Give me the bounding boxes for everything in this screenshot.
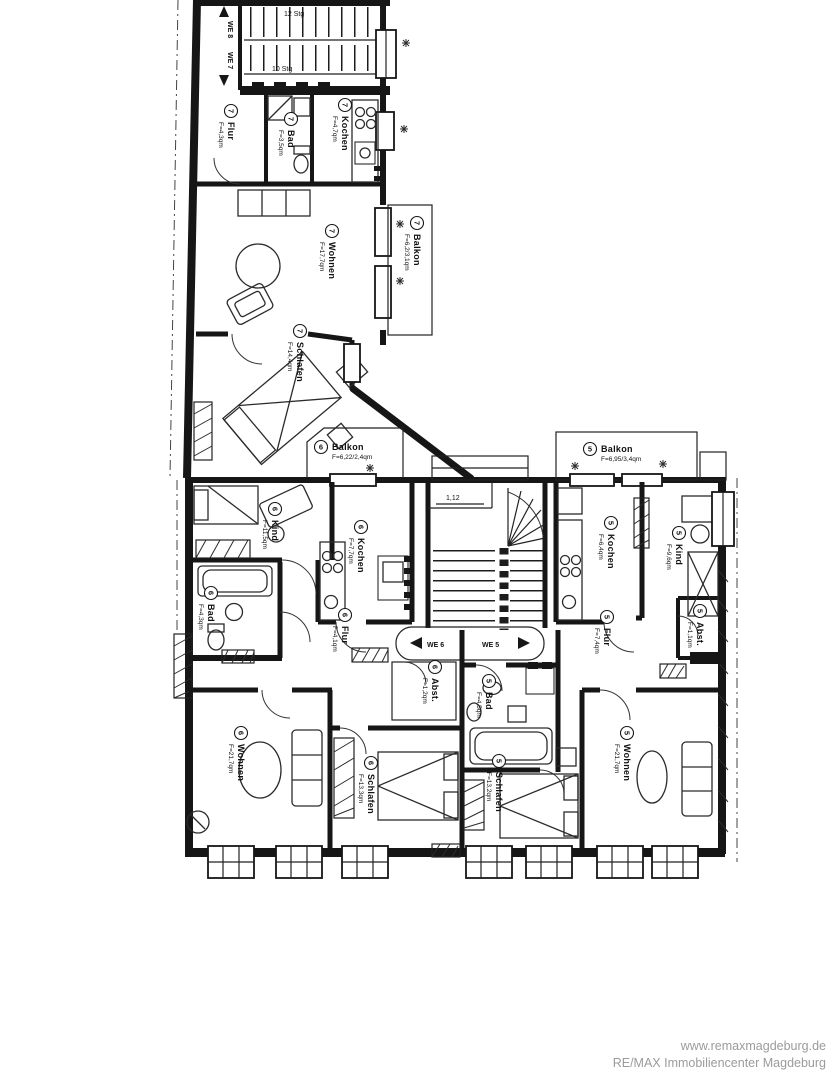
- svg-text:F=7,7qm: F=7,7qm: [347, 538, 354, 564]
- watermark: www.remaxmagdeburg.de RE/MAX Immobilienc…: [613, 1038, 826, 1072]
- svg-text:Flur: Flur: [340, 626, 350, 644]
- room-label-we6-flur: 6 Flur F=4,1qm: [331, 609, 352, 652]
- threshold: [352, 648, 388, 662]
- svg-text:5: 5: [494, 759, 503, 763]
- room-label-we6-abst: 6 Abst. F=1,2qm: [421, 661, 442, 704]
- svg-text:Bad: Bad: [206, 604, 216, 622]
- svg-text:F=6,4qm: F=6,4qm: [597, 534, 604, 560]
- sofa: [292, 730, 322, 806]
- svg-text:F=7,4qm: F=7,4qm: [593, 628, 600, 654]
- stairwell-top: 12 Stg 10 Stg: [240, 3, 390, 95]
- svg-text:6: 6: [340, 613, 349, 617]
- vent-symbol: [396, 220, 404, 228]
- room-label-we7-flur: 7 Flur F=4,3qm: [217, 105, 238, 148]
- svg-text:6: 6: [319, 443, 323, 452]
- svg-text:5: 5: [695, 609, 704, 613]
- room-label-we7-kochen: 7 Kochen F=4,7qm: [331, 99, 352, 151]
- vent-symbol: [366, 464, 374, 472]
- room-label-we5-schlafen: 5 Schlafen F=13,2qm: [485, 755, 506, 812]
- svg-text:6: 6: [236, 731, 245, 735]
- chair: [691, 525, 709, 543]
- washer: [526, 668, 554, 694]
- table: [637, 751, 667, 803]
- window: [466, 846, 512, 878]
- window: [208, 846, 254, 878]
- unit-marker-we7: WE 7: [219, 52, 233, 86]
- we5-schlafen-fixtures: [464, 748, 578, 838]
- bed: [500, 774, 578, 838]
- room-label-we5-kochen: 5 Kochen F=6,4qm: [597, 517, 618, 569]
- vent-symbol: [396, 277, 404, 285]
- svg-text:Kind: Kind: [674, 544, 684, 565]
- room-label-we5-abst: 5 Abst. F=1,1qm: [686, 605, 707, 648]
- svg-text:7: 7: [340, 103, 349, 107]
- svg-text:7: 7: [286, 117, 295, 121]
- room-label-we6-wohnen: 6 Wohnen F=21,7qm: [227, 727, 248, 782]
- we5-wohnen-fixtures: [637, 742, 712, 816]
- svg-text:6: 6: [366, 761, 375, 765]
- we7-label: WE 7: [226, 52, 233, 69]
- svg-text:Bad: Bad: [484, 692, 494, 710]
- we5-label: WE 5: [482, 642, 499, 649]
- room-label-we5-balkon: 5 Balkon F=6,95/3,4qm: [584, 443, 642, 464]
- we6-schlafen-fixtures: [334, 738, 458, 820]
- room-label-we6-schlafen: 6 Schlafen F=13,3qm: [357, 757, 378, 814]
- sofa: [682, 742, 712, 816]
- svg-text:F=1,2qm: F=1,2qm: [421, 678, 428, 704]
- window: [276, 846, 322, 878]
- room-label-we5-bad: 5 Bad F=4,5qm: [475, 675, 496, 718]
- room-label-we7-balkon: 7 Balkon F=6,2/3,1qm: [403, 217, 424, 271]
- vent-symbol: [659, 460, 667, 468]
- svg-text:F=1,1qm: F=1,1qm: [686, 622, 693, 648]
- wardrobe: [194, 402, 212, 460]
- svg-text:Kochen: Kochen: [606, 534, 616, 569]
- bed: [378, 752, 458, 820]
- vent-symbol: [400, 125, 408, 133]
- floor-plan-page: 12 Stg 10 Stg WE 8 WE 7: [0, 0, 831, 1080]
- floor-plan-canvas: 12 Stg 10 Stg WE 8 WE 7: [0, 0, 831, 1080]
- room-label-we5-flur: 5 Flur F=7,4qm: [593, 611, 614, 654]
- bed: [194, 486, 258, 524]
- vent-symbol: [571, 462, 579, 470]
- watermark-company: RE/MAX Immobiliencenter Magdeburg: [613, 1055, 826, 1072]
- svg-text:F=14,4qm: F=14,4qm: [286, 342, 293, 371]
- sink: [226, 604, 243, 621]
- svg-text:5: 5: [588, 445, 592, 454]
- bathtub: [470, 728, 552, 764]
- svg-text:5: 5: [674, 531, 683, 535]
- svg-text:F=13,3qm: F=13,3qm: [357, 774, 364, 803]
- room-label-we6-bad: 6 Bad F=4,3qm: [197, 587, 218, 630]
- hall-unit-markers: WE 6 WE 5: [396, 627, 544, 660]
- svg-text:Schlafen: Schlafen: [494, 772, 504, 812]
- stairs-mid-label: 10 Stg: [272, 66, 292, 73]
- svg-text:5: 5: [602, 615, 611, 619]
- wardrobe: [196, 540, 250, 558]
- room-label-we5-kind: 5 Kind F=9,6qm: [665, 527, 686, 570]
- svg-text:F=9,6qm: F=9,6qm: [665, 544, 672, 570]
- svg-text:5: 5: [484, 679, 493, 683]
- svg-text:Wohnen: Wohnen: [327, 242, 337, 279]
- watermark-url: www.remaxmagdeburg.de: [613, 1038, 826, 1055]
- outer-walls: [170, 0, 737, 862]
- unit-marker-we8: WE 8: [219, 6, 233, 38]
- svg-text:F=17,7qm: F=17,7qm: [318, 242, 325, 271]
- svg-text:7: 7: [327, 229, 336, 233]
- svg-text:Kochen: Kochen: [356, 538, 366, 573]
- svg-text:F=4,3qm: F=4,3qm: [217, 122, 224, 148]
- svg-text:Balkon: Balkon: [601, 444, 633, 454]
- svg-text:F=11,5qm: F=11,5qm: [261, 520, 268, 549]
- room-label-we5-wohnen: 5 Wohnen F=21,7qm: [613, 727, 634, 782]
- svg-text:Abst.: Abst.: [695, 622, 705, 646]
- svg-text:Flur: Flur: [226, 122, 236, 140]
- svg-text:F=4,1qm: F=4,1qm: [331, 626, 338, 652]
- stairwell-center: 1,12: [428, 480, 545, 630]
- we8-label: WE 8: [226, 21, 233, 38]
- we5-walls: [556, 482, 722, 678]
- svg-text:Wohnen: Wohnen: [622, 744, 632, 781]
- svg-text:Balkon: Balkon: [412, 234, 422, 266]
- svg-text:Kochen: Kochen: [340, 116, 350, 151]
- svg-text:7: 7: [226, 109, 235, 113]
- svg-text:F=21,7qm: F=21,7qm: [613, 744, 620, 773]
- svg-text:Schlafen: Schlafen: [366, 774, 376, 814]
- room-label-we6-kochen: 6 Kochen F=7,7qm: [347, 521, 368, 573]
- svg-text:F=6,22/2,4qm: F=6,22/2,4qm: [332, 454, 372, 461]
- window: [342, 846, 388, 878]
- round-table: [236, 244, 280, 288]
- svg-text:Kind: Kind: [270, 520, 280, 541]
- svg-text:Flur: Flur: [602, 628, 612, 646]
- we6-label: WE 6: [427, 642, 444, 649]
- wardrobe: [334, 738, 354, 818]
- svg-text:F=4,3qm: F=4,3qm: [197, 604, 204, 630]
- svg-text:Wohnen: Wohnen: [236, 744, 246, 781]
- we6-kind-fixtures: [194, 484, 313, 542]
- svg-text:6: 6: [430, 665, 439, 669]
- svg-text:Balkon: Balkon: [332, 442, 364, 452]
- window: [526, 846, 572, 878]
- entry-dimension: 1,12: [446, 495, 460, 502]
- svg-text:Bad: Bad: [286, 130, 296, 148]
- we5-kitchen-fixtures: [558, 488, 582, 620]
- window: [652, 846, 698, 878]
- threshold: [660, 664, 686, 678]
- svg-text:6: 6: [206, 591, 215, 595]
- svg-text:Abst.: Abst.: [430, 678, 440, 702]
- svg-text:6: 6: [270, 507, 279, 511]
- svg-text:6: 6: [356, 525, 365, 529]
- svg-text:F=21,7qm: F=21,7qm: [227, 744, 234, 773]
- svg-text:7: 7: [412, 221, 421, 225]
- we5-bad: [462, 630, 558, 852]
- window: [597, 846, 643, 878]
- svg-text:F=4,7qm: F=4,7qm: [331, 116, 338, 142]
- svg-text:F=3,5qm: F=3,5qm: [277, 130, 284, 156]
- wardrobe: [464, 780, 484, 830]
- svg-text:F=13,2qm: F=13,2qm: [485, 772, 492, 801]
- we6-wohnen-fixtures: [187, 730, 322, 833]
- svg-text:F=6,2/3,1qm: F=6,2/3,1qm: [403, 234, 410, 271]
- svg-text:F=4,5qm: F=4,5qm: [475, 692, 482, 718]
- room-label-we7-schlafen: 7 Schlafen F=14,4qm: [286, 325, 307, 382]
- svg-text:5: 5: [622, 731, 631, 735]
- svg-text:Schlafen: Schlafen: [295, 342, 305, 382]
- bottom-windows: [208, 492, 734, 878]
- svg-text:5: 5: [606, 521, 615, 525]
- svg-text:7: 7: [295, 329, 304, 333]
- vent-symbol: [402, 39, 410, 47]
- room-label-we7-wohnen: 7 Wohnen F=17,7qm: [318, 225, 339, 280]
- toilet: [208, 630, 224, 650]
- room-label-we6-balkon: 6 Balkon F=6,22/2,4qm: [315, 441, 373, 462]
- stairs-top-label: 12 Stg: [284, 11, 304, 18]
- svg-text:F=6,95/3,4qm: F=6,95/3,4qm: [601, 456, 641, 463]
